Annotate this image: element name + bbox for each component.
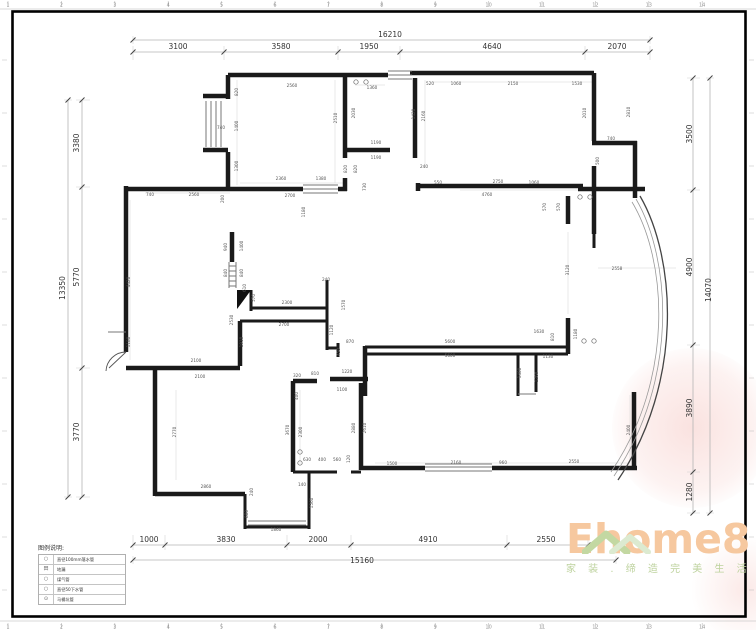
dimension-label: 5600 (445, 339, 456, 344)
dimension-label: 1530 (572, 81, 583, 86)
dimension-label: 2150 (508, 81, 519, 86)
dimension-label: 1190 (371, 140, 382, 145)
dimension-label: 2160 (421, 110, 426, 121)
dimension-label: 200 (220, 195, 225, 203)
legend-title: 图例说明: (38, 543, 126, 552)
dimension-label: 1190 (371, 155, 382, 160)
dimension-label: 12 (592, 625, 598, 630)
dimension-label: 3 (113, 625, 116, 630)
dimension-label: 1060 (451, 81, 462, 86)
dimension-label: 880 (244, 510, 249, 518)
dimension-label: 3500 (685, 124, 694, 143)
dimension-label: 140 (298, 482, 306, 487)
dimension-label: 3830 (216, 535, 235, 544)
dimension-label: 9 (434, 625, 437, 630)
dimension-label: 120 (346, 455, 351, 463)
pipe-circle-symbol (354, 80, 358, 84)
dimension-label: 10 (485, 625, 491, 630)
balcony-arc (611, 196, 667, 480)
dimension-label: 570 (542, 203, 547, 211)
dimension-label: 3890 (685, 398, 694, 417)
dimension-label: 14 (699, 3, 705, 9)
dimension-label: 870 (346, 339, 354, 344)
dimension-label: 1500 (387, 461, 398, 466)
pipe-circle-symbol (364, 80, 368, 84)
dimension-label: 3100 (168, 42, 187, 51)
dimension-label: 12 (592, 3, 598, 9)
dimension-label: 1380 (316, 176, 327, 181)
dimension-label: 1950 (359, 42, 378, 51)
dimension-label: 13350 (58, 276, 67, 300)
dimension-label: 14 (699, 625, 705, 630)
dimension-label: 1400 (234, 120, 239, 131)
dimension-label: 2510 (333, 112, 338, 123)
dimension-label: 1260 (534, 371, 539, 382)
dimension-label: 820 (234, 88, 239, 96)
legend-item-label: 煤气管 (54, 577, 125, 583)
walls-thick (126, 73, 645, 496)
legend-item-label: 地漏 (54, 567, 125, 573)
dimension-label: 2700 (279, 322, 290, 327)
pipe-circle-symbol (592, 339, 596, 343)
dimension-label: 240 (322, 277, 330, 282)
dimension-label: 4910 (418, 535, 437, 544)
dimension-label: 2560 (189, 192, 200, 197)
dimension-label: 400 (318, 457, 326, 462)
legend-symbol: ○ (39, 585, 54, 594)
dimension-label: 3380 (72, 133, 81, 152)
dimension-label: 2750 (493, 179, 504, 184)
dimension-label: 730 (362, 183, 367, 191)
dimension-label: 1570 (341, 299, 346, 310)
dimension-label: 2550 (569, 459, 580, 464)
dimension-label: 1630 (534, 329, 545, 334)
floor-plan-page: 1621031003580195046402070133503380577037… (0, 0, 756, 630)
dimension-label: 11 (539, 625, 545, 630)
dimension-label: 2070 (607, 42, 626, 51)
dimension-label: 2 (60, 3, 63, 9)
dimension-label: 2300 (298, 426, 303, 437)
pipe-circle-symbol (578, 195, 582, 199)
dimension-label: 1180 (573, 328, 578, 339)
dimension-label: 1100 (337, 387, 348, 392)
dimension-label: 1300 (234, 160, 239, 171)
dimension-label: 4420 (126, 276, 131, 287)
dimension-label: 1130 (543, 354, 554, 359)
dimension-label: 3 (113, 3, 116, 9)
dimension-label: 15160 (350, 556, 374, 565)
dimension-label: 2810 (626, 106, 631, 117)
dimension-label: 8 (380, 625, 383, 630)
dimension-label: 7 (327, 3, 330, 9)
dimension-label: 8 (380, 3, 383, 9)
dimension-label: 1 (6, 625, 9, 630)
legend-symbol: ○ (39, 555, 54, 564)
dimension-label: 2010 (582, 107, 587, 118)
legend: 图例说明: ○直径100mm落水管田地漏○煤气管○直径50下水管⊙马桶坑管 (38, 543, 126, 605)
dimension-label: 3770 (72, 422, 81, 441)
dimension-label: 2560 (287, 83, 298, 88)
dimension-label: 1060 (529, 180, 540, 185)
dimension-label: 630 (303, 457, 311, 462)
dimension-label: 1400 (239, 240, 244, 251)
dimension-label: 5600 (445, 353, 456, 358)
dimension-label: 4 (167, 625, 170, 630)
dimension-label: 16210 (378, 30, 402, 39)
dimension-label: 2160 (451, 460, 462, 465)
dimension-label: 4640 (482, 42, 501, 51)
legend-item-label: 直径100mm落水管 (54, 557, 125, 563)
pipe-circle-symbol (582, 339, 586, 343)
dimension-label: 1180 (126, 336, 131, 347)
legend-row: ○直径50下水管 (39, 584, 125, 594)
dimension-label: 2 (60, 625, 63, 630)
dimension-label: 6 (273, 3, 276, 9)
dimension-label: 940 (223, 243, 228, 251)
dimension-label: 2860 (201, 484, 212, 489)
dimension-label: 960 (499, 460, 507, 465)
dimension-label: 1860 (271, 527, 282, 532)
pipe-symbols (298, 80, 596, 465)
dimension-label: 4760 (482, 192, 493, 197)
dimension-label: 1000 (139, 535, 158, 544)
dimension-label: 1280 (685, 482, 694, 501)
legend-symbol: 田 (39, 565, 54, 574)
legend-row: ○煤气管 (39, 574, 125, 584)
dimension-label: 740 (217, 125, 225, 130)
dimension-label: 1220 (342, 369, 353, 374)
dimension-label: 740 (607, 136, 615, 141)
dimension-label: 9 (434, 3, 437, 9)
dimension-label: 2030 (351, 107, 356, 118)
dimension-label: 2610 (362, 422, 367, 433)
dimension-label: 840 (239, 269, 244, 277)
dimension-label: 2550 (536, 535, 555, 544)
dimension-label: 2000 (308, 535, 327, 544)
dimension-label: 4900 (685, 257, 694, 276)
dimension-label: 240 (249, 488, 254, 496)
legend-symbol: ⊙ (39, 595, 54, 604)
legend-row: ⊙马桶坑管 (39, 594, 125, 604)
dimension-label: 1180 (301, 206, 306, 217)
dimension-label: 560 (333, 457, 341, 462)
dimension-label: 570 (556, 203, 561, 211)
dimension-label: 400 (294, 392, 299, 400)
dimension-label: 2400 (626, 424, 631, 435)
dimension-label: 2880 (351, 422, 356, 433)
dimension-label: 2700 (285, 193, 296, 198)
dimension-label: 1910 (239, 336, 244, 347)
dimension-label: 1120 (329, 324, 334, 335)
dimension-label: 2360 (276, 176, 287, 181)
dimension-label: 10 (485, 3, 491, 9)
dimension-label: 820 (353, 165, 358, 173)
dimension-label: 3670 (285, 424, 290, 435)
dimension-label: 2300 (282, 300, 293, 305)
dimension-label: 740 (146, 192, 154, 197)
dimension-label: 610 (242, 284, 247, 292)
dimension-label: 7 (327, 625, 330, 630)
logo-slogan: 家 装 . 缔 造 完 美 生 活 (566, 560, 748, 575)
dimension-label: 500 (595, 157, 600, 165)
dimension-label: 5 (220, 625, 223, 630)
dimension-label: 840 (223, 269, 228, 277)
dimension-label: 1360 (367, 85, 378, 90)
legend-row: 田地漏 (39, 564, 125, 574)
dimension-label: 2530 (229, 314, 234, 325)
dimension-label: 2770 (172, 426, 177, 437)
dimension-label: 4 (167, 3, 170, 9)
logo: Ehome8 家 装 . 缔 造 完 美 生 活 (566, 528, 748, 575)
legend-row: ○直径100mm落水管 (39, 555, 125, 564)
dimension-label: 6 (273, 625, 276, 630)
dimension-label: 3580 (271, 42, 290, 51)
dimension-label: 1420 (411, 108, 416, 119)
dimension-label: 3120 (565, 264, 570, 275)
entry-door-arc (106, 352, 126, 371)
dimension-label: 570 (251, 294, 256, 302)
dimension-label: 1560 (309, 497, 314, 508)
dimension-label: 550 (434, 180, 442, 185)
dimension-label: 450 (336, 348, 341, 356)
dimension-lines (64, 36, 714, 564)
dimension-label: 14070 (704, 278, 713, 302)
legend-table: ○直径100mm落水管田地漏○煤气管○直径50下水管⊙马桶坑管 (38, 554, 126, 605)
legend-item-label: 马桶坑管 (54, 597, 125, 603)
dimension-label: 810 (311, 371, 319, 376)
dimension-label: 820 (343, 165, 348, 173)
legend-symbol: ○ (39, 575, 54, 584)
dimension-label: 320 (293, 373, 301, 378)
dimension-label: 240 (420, 164, 428, 169)
dimension-label: 2558 (612, 266, 623, 271)
dimension-label: 13 (646, 625, 652, 630)
dimension-label: 5770 (72, 267, 81, 286)
dimension-label: 1 (6, 3, 9, 9)
legend-item-label: 直径50下水管 (54, 587, 125, 593)
dimension-label: 520 (426, 81, 434, 86)
dimension-label: 2100 (195, 374, 206, 379)
dimension-label: 5 (220, 3, 223, 9)
pipe-circle-symbol (588, 195, 592, 199)
dimension-label: 13 (646, 3, 652, 9)
dimension-label: 1400 (517, 367, 522, 378)
logo-roof-icon (582, 528, 652, 554)
dimension-tick-marks (66, 38, 713, 563)
dimension-label: 2100 (191, 358, 202, 363)
dimension-label: 11 (539, 3, 545, 9)
dimension-label: 810 (550, 333, 555, 341)
